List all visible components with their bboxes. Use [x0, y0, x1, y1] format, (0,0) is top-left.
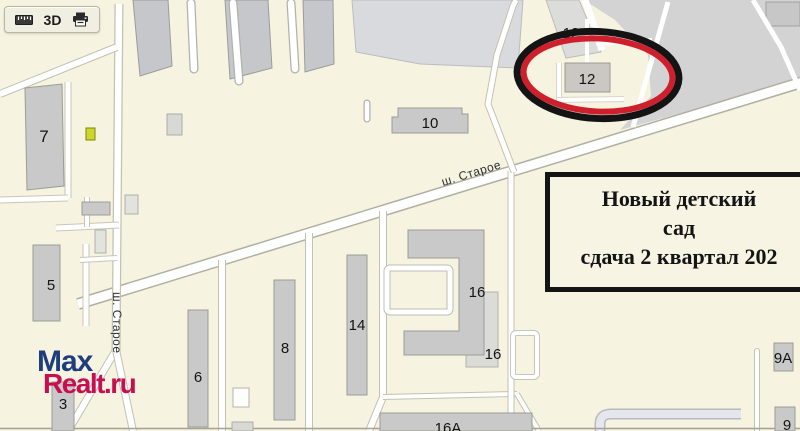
small-building: [82, 202, 110, 215]
annotation-line-3: сдача 2 квартал 202: [550, 242, 800, 271]
building-label-10: 10: [422, 115, 439, 132]
building-label-6: 6: [194, 369, 202, 386]
small-building: [233, 388, 249, 407]
print-button[interactable]: [72, 9, 89, 30]
building-label-14: 14: [349, 317, 366, 334]
building-label-12: 12: [579, 71, 596, 88]
building-label-16a: 16А: [435, 420, 462, 431]
ruler-icon: [15, 14, 33, 26]
building-label-8: 8: [281, 340, 289, 357]
building-label-16-lower: 16: [485, 346, 502, 363]
small-building: [95, 230, 106, 253]
map-screenshot: 7 5 3 6 8 14 10 16 16 16А 12 12 9А 9 ш. …: [0, 0, 800, 431]
building-label-7: 7: [39, 127, 48, 146]
building-label-9: 9: [783, 417, 791, 431]
mode-3d-button[interactable]: 3D: [44, 9, 62, 30]
small-building: [232, 422, 253, 431]
building-label-3: 3: [59, 396, 67, 413]
ruler-button[interactable]: [15, 9, 33, 30]
map-toolbar: 3D: [4, 6, 100, 33]
printer-icon: [72, 12, 89, 27]
building-label-5: 5: [47, 277, 55, 294]
poi-marker: [86, 128, 95, 140]
annotation-line-1: Новый детский: [550, 184, 800, 213]
building-label-9a: 9А: [774, 350, 792, 367]
mode-3d-label: 3D: [44, 12, 62, 28]
small-building: [125, 195, 138, 214]
building-label-16-upper: 16: [469, 284, 486, 301]
small-building: [167, 114, 182, 135]
annotation-line-2: сад: [550, 213, 800, 242]
street-label-side: ш. Старое: [110, 292, 124, 354]
annotation-box: Новый детский сад сдача 2 квартал 202: [545, 172, 800, 292]
